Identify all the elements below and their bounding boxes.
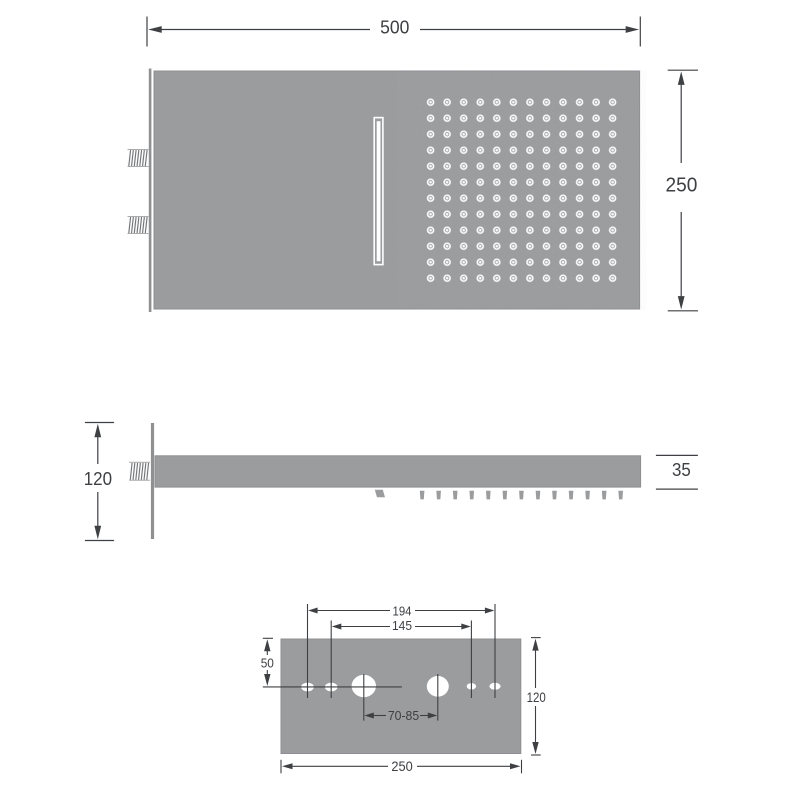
svg-text:500: 500 (380, 18, 409, 38)
svg-text:250: 250 (391, 759, 412, 774)
svg-text:145: 145 (392, 618, 412, 633)
svg-text:250: 250 (666, 174, 698, 196)
svg-text:50: 50 (261, 656, 274, 671)
svg-text:194: 194 (393, 603, 412, 618)
svg-text:120: 120 (527, 689, 546, 705)
svg-text:120: 120 (84, 469, 112, 489)
svg-text:35: 35 (672, 460, 691, 480)
svg-text:70-85: 70-85 (388, 708, 419, 723)
